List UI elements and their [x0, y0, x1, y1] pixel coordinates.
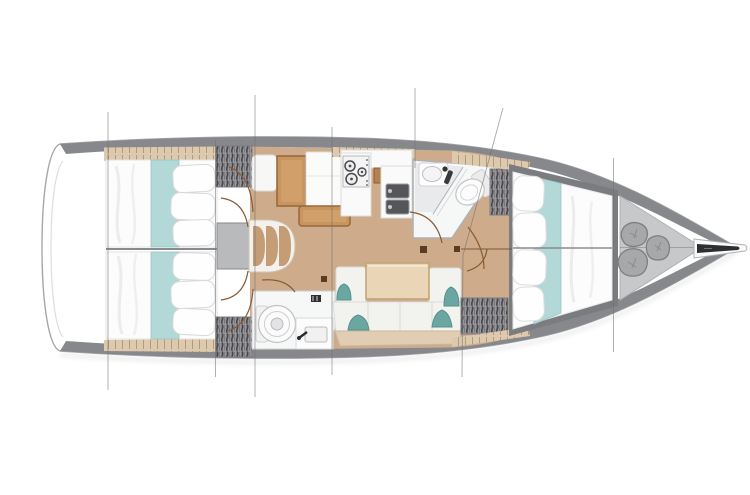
aft-berth-port [106, 160, 217, 247]
aft-head-toilet [256, 306, 296, 343]
sail-bag-icon [618, 249, 647, 276]
fwd-head-sink [419, 163, 448, 186]
settee-base [335, 331, 462, 346]
vent-icon [311, 295, 321, 302]
aft-shelf-bottom [104, 339, 218, 352]
pillows-port [171, 164, 216, 247]
nav-cabinet [306, 152, 341, 211]
aft-locker-top [216, 146, 252, 187]
floorplan-canvas [0, 0, 750, 495]
faucet-icon [442, 166, 447, 171]
fwd-locker-bottom [461, 298, 508, 334]
aft-head [252, 291, 335, 349]
floorplan-svg [0, 0, 750, 495]
nav-seat [252, 155, 277, 191]
pillows-starboard [171, 252, 216, 336]
aft-head-sink [296, 318, 333, 349]
sail-bag-icon [621, 223, 647, 247]
aft-berth-starboard [106, 252, 217, 339]
salon-table [366, 263, 429, 299]
aft-locker-bottom [216, 317, 252, 357]
companionway [217, 220, 295, 272]
aft-shelf-top [104, 147, 218, 162]
companionway-steps [253, 226, 291, 266]
fwd-locker-top [490, 169, 511, 215]
engine-platform [217, 223, 249, 269]
